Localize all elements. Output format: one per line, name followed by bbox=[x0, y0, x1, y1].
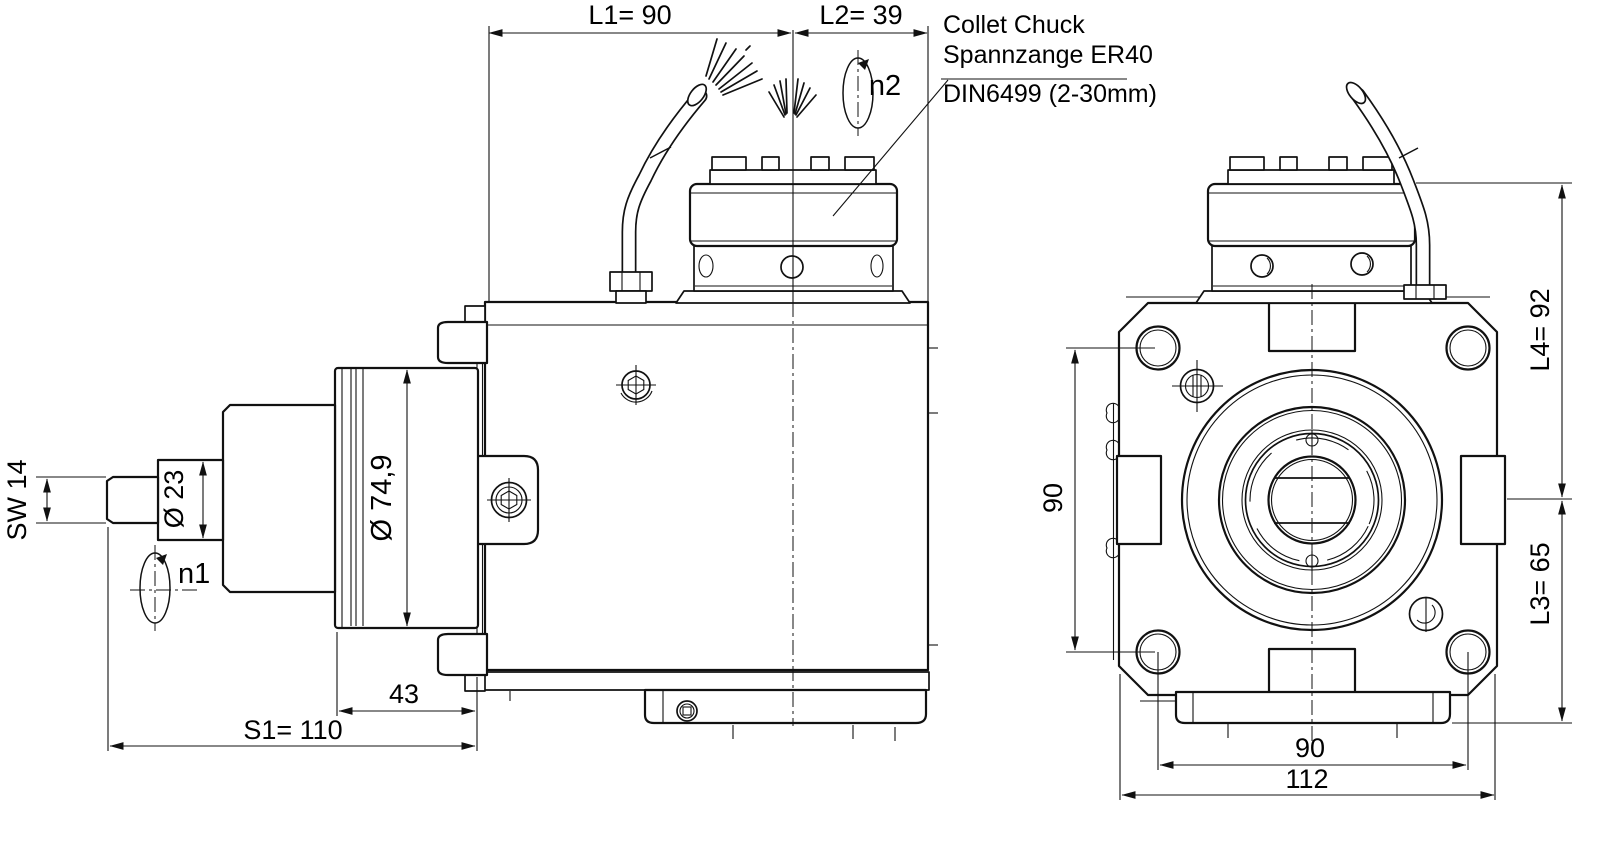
shaft-end-sw14 bbox=[107, 477, 158, 523]
dim-label-112: 112 bbox=[1285, 764, 1328, 794]
speed-label-n2: n2 bbox=[869, 70, 901, 102]
annotation-line1: Collet Chuck bbox=[943, 11, 1085, 39]
dim-label-l3: L3= 65 bbox=[1525, 542, 1555, 625]
face-tab-bottom bbox=[438, 634, 487, 675]
annotation-line2: Spannzange ER40 bbox=[943, 41, 1153, 69]
dim-label-sw14: SW 14 bbox=[2, 459, 32, 540]
gearbox-body-side bbox=[438, 302, 938, 741]
dim-label-43: 43 bbox=[389, 679, 419, 709]
side-view bbox=[107, 30, 938, 741]
left-block-front bbox=[1117, 456, 1161, 544]
face-step-top bbox=[465, 306, 485, 322]
dim-label-90v: 90 bbox=[1038, 483, 1068, 513]
technical-drawing-page: L1= 90 L2= 39 Collet Chuck Spannzange ER… bbox=[0, 0, 1600, 844]
pipe-fitting-nut bbox=[610, 272, 652, 291]
dim-label-dia23: Ø 23 bbox=[159, 470, 189, 529]
front-view bbox=[1106, 79, 1505, 745]
spindle-cylinder-mid bbox=[223, 405, 335, 592]
dim-label-90h: 90 bbox=[1295, 733, 1325, 763]
right-block-front bbox=[1461, 456, 1505, 544]
speed-label-n1: n1 bbox=[178, 558, 210, 590]
chuck-flange-front bbox=[1196, 291, 1432, 303]
chuck-castellated-ring-front bbox=[1228, 170, 1394, 184]
spindle-head-drawing: L1= 90 L2= 39 Collet Chuck Spannzange ER… bbox=[0, 0, 1600, 844]
base-plate-front bbox=[1176, 692, 1450, 723]
coolant-spray-left bbox=[706, 39, 762, 95]
pipe-fitting-nut-front bbox=[1404, 285, 1446, 299]
dim-label-s1: S1= 110 bbox=[243, 715, 342, 745]
dim-label-l2: L2= 39 bbox=[819, 0, 902, 30]
annotation-line3: DIN6499 (2-30mm) bbox=[943, 80, 1157, 108]
face-tab-top bbox=[438, 322, 487, 363]
dim-label-l1: L1= 90 bbox=[588, 0, 671, 30]
base-slab bbox=[466, 672, 929, 690]
dim-label-dia749: Ø 74,9 bbox=[366, 454, 398, 541]
dim-label-l4: L4= 92 bbox=[1525, 288, 1555, 371]
face-step-bottom bbox=[465, 675, 485, 691]
collet-chuck-front bbox=[1196, 157, 1432, 303]
